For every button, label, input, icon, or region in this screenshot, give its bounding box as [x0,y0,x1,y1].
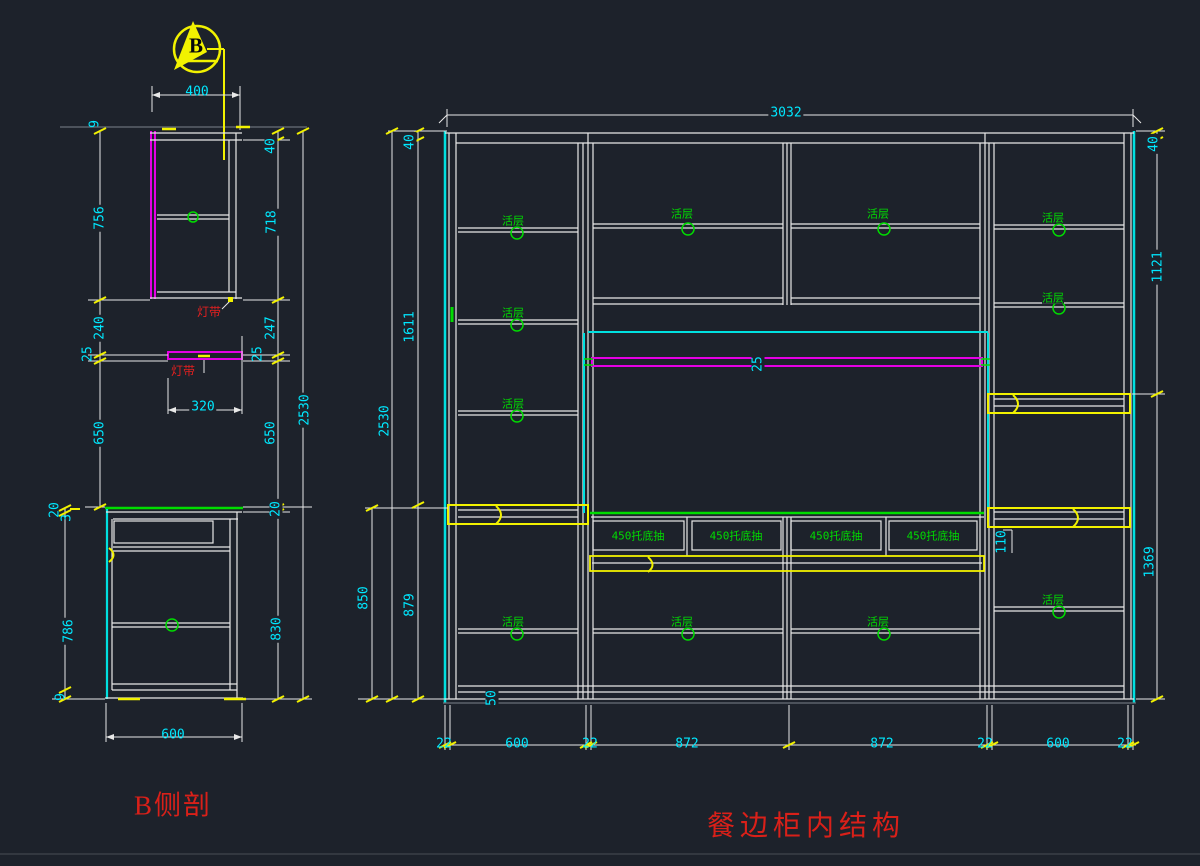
dim-main-right-1121: 1121 [1152,249,1165,284]
shelf-label: 活层 [671,209,693,220]
dim-side-left-25: 25 [82,346,95,362]
dim-main-toe-50: 50 [486,688,499,708]
dim-main-bottom-5: 22 [977,738,993,751]
dim-side-ll-9: 9 [55,693,68,701]
dim-side-left-240: 240 [94,314,107,341]
cad-viewport: 400 320 600 9 756 240 25 650 20 3 786 9 … [0,0,1200,866]
dim-main-bottom-2: 22 [582,738,598,751]
dim-main-top-3032: 3032 [768,107,803,120]
dim-main-right-40: 40 [1148,134,1161,154]
shelf-label: 活层 [502,617,524,628]
light-strip-label-2: 灯带 [171,365,195,377]
dim-side-left-756: 756 [94,204,107,231]
dim-side-ll-786: 786 [63,617,76,644]
dim-side-right-25: 25 [252,346,265,362]
dim-side-right-650: 650 [265,419,278,446]
dim-main-right-110: 110 [996,530,1009,553]
dim-side-mid-depth: 320 [189,401,216,414]
dim-side-bottom-width: 600 [161,729,184,742]
drawer-label-4: 450托底抽 [907,531,960,542]
shelf-label: 活层 [1042,595,1064,606]
dim-main-left-40: 40 [404,132,417,152]
shelf-label: 活层 [1042,213,1064,224]
dim-side-right-830: 830 [271,615,284,642]
section-letter-b: B [189,34,203,59]
drawer-label-3: 450托底抽 [810,531,863,542]
dim-main-bottom-3: 872 [675,738,698,751]
dim-side-left-9: 9 [89,120,102,128]
main-view-title: 餐边柜内结构 [707,813,905,841]
side-view-title: B侧剖 [134,793,212,820]
shelf-label: 活层 [867,209,889,220]
shelf-label: 活层 [671,617,693,628]
dim-side-ll-3: 3 [61,514,74,522]
dim-side-right-40: 40 [265,136,278,156]
shelf-label: 活层 [867,617,889,628]
shelf-label: 活层 [502,308,524,319]
dim-main-bottom-4: 872 [870,738,893,751]
light-strip-label-1: 灯带 [197,306,221,318]
dim-side-left-650: 650 [94,419,107,446]
dim-side-right-718: 718 [266,208,279,235]
dim-main-bottom-1: 600 [505,738,528,751]
shelf-label: 活层 [502,399,524,410]
dim-side-overall-2530: 2530 [299,392,312,427]
dim-main-left-2530: 2530 [379,403,392,438]
dim-main-right-1369: 1369 [1144,544,1157,579]
shelf-label: 活层 [502,216,524,227]
dim-main-left-879: 879 [404,591,417,618]
dim-side-top-width: 400 [185,86,208,99]
drawer-label-1: 450托底抽 [612,531,665,542]
dim-main-bottom-6: 600 [1046,738,1069,751]
dim-side-right-247: 247 [265,314,278,341]
dim-main-strip-25: 25 [752,354,765,374]
dim-main-bottom-7: 22 [1117,738,1133,751]
drawer-label-2: 450托底抽 [710,531,763,542]
dim-main-left-850: 850 [358,584,371,611]
dim-side-right-20: 20 [270,499,283,519]
dim-main-left-1611: 1611 [404,309,417,344]
shelf-label: 活层 [1042,293,1064,304]
dim-main-bottom-0: 22 [436,738,452,751]
